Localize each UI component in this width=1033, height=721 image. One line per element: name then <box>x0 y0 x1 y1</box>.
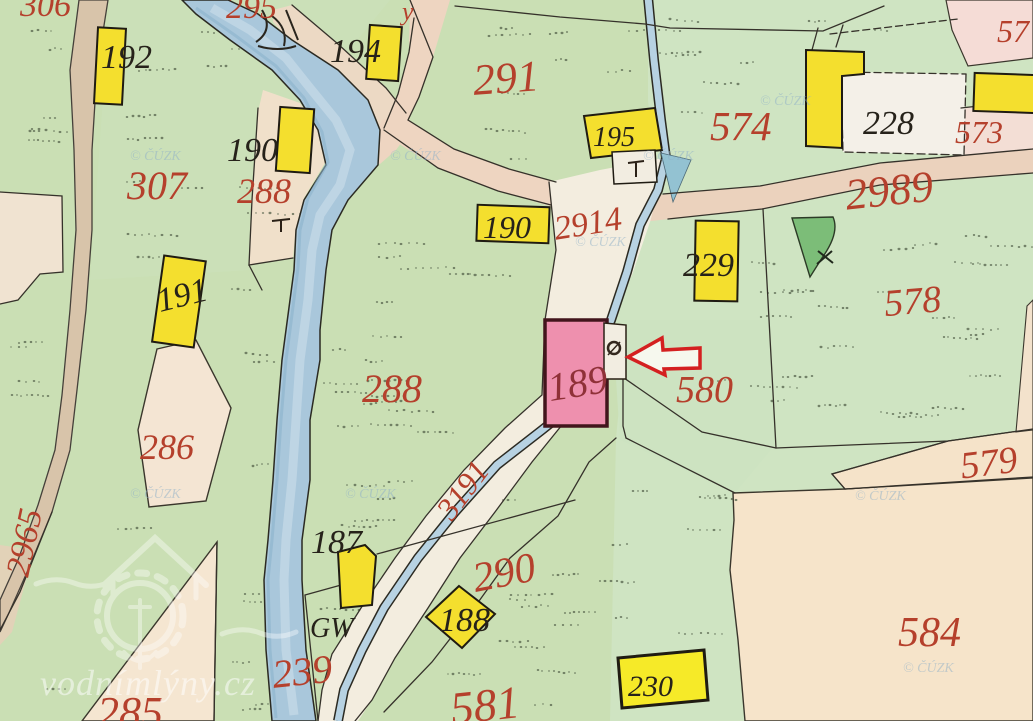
svg-text:© ČÚZK: © ČÚZK <box>855 487 906 504</box>
svg-text:© ČÚZK: © ČÚZK <box>130 485 181 502</box>
svg-text:574: 574 <box>710 103 772 149</box>
svg-text:239: 239 <box>270 646 334 697</box>
svg-text:291: 291 <box>471 51 540 104</box>
svg-text:© ČÚZK: © ČÚZK <box>643 147 694 164</box>
svg-text:vodnímlýny.cz: vodnímlýny.cz <box>40 663 256 703</box>
svg-text:580: 580 <box>676 369 733 411</box>
svg-text:307: 307 <box>126 163 189 208</box>
svg-text:579: 579 <box>958 439 1020 488</box>
svg-text:57: 57 <box>997 13 1031 49</box>
svg-text:230: 230 <box>628 670 673 703</box>
svg-text:© ČÚZK: © ČÚZK <box>130 147 181 164</box>
svg-text:288: 288 <box>362 366 422 411</box>
svg-text:© ČÚZK: © ČÚZK <box>760 92 811 109</box>
svg-text:© ČÚZK: © ČÚZK <box>903 659 954 676</box>
svg-text:578: 578 <box>882 278 942 325</box>
svg-text:y: y <box>399 0 414 26</box>
svg-text:GW: GW <box>310 613 356 644</box>
svg-text:229: 229 <box>683 247 734 284</box>
svg-text:288: 288 <box>237 171 291 211</box>
svg-text:190: 190 <box>483 209 531 245</box>
svg-text:581: 581 <box>448 676 522 721</box>
svg-text:2989: 2989 <box>843 162 936 220</box>
svg-text:189: 189 <box>544 356 610 410</box>
svg-text:192: 192 <box>101 39 152 76</box>
svg-text:195: 195 <box>593 122 635 153</box>
svg-text:© ČÚZK: © ČÚZK <box>345 485 396 502</box>
svg-text:© ČÚZK: © ČÚZK <box>390 147 441 164</box>
svg-text:228: 228 <box>863 105 914 142</box>
svg-text:187: 187 <box>311 524 364 561</box>
svg-text:194: 194 <box>330 33 381 70</box>
svg-text:188: 188 <box>439 602 490 639</box>
svg-text:573: 573 <box>955 114 1003 150</box>
svg-text:584: 584 <box>898 610 961 656</box>
svg-text:295: 295 <box>226 0 277 26</box>
svg-text:190: 190 <box>227 132 278 169</box>
svg-text:306: 306 <box>19 0 71 24</box>
svg-text:286: 286 <box>140 427 194 467</box>
svg-text:© ČÚZK: © ČÚZK <box>575 233 626 250</box>
